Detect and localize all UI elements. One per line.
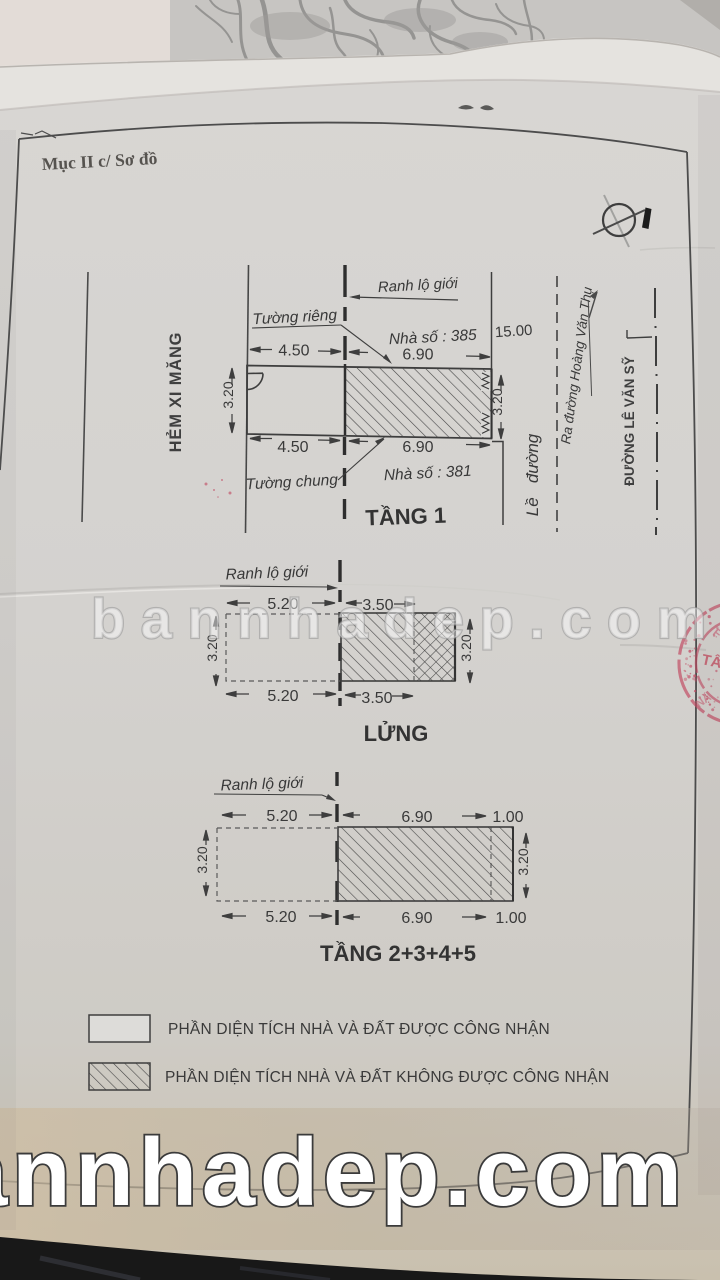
svg-text:4.50: 4.50 bbox=[277, 439, 308, 456]
svg-text:6.90: 6.90 bbox=[401, 910, 432, 927]
svg-text:1.00: 1.00 bbox=[492, 809, 523, 826]
svg-text:bannhadep.com: bannhadep.com bbox=[91, 587, 720, 650]
svg-text:Ranh lộ giới: Ranh lộ giới bbox=[220, 775, 304, 795]
svg-text:3.20: 3.20 bbox=[194, 846, 210, 873]
svg-text:6.90: 6.90 bbox=[401, 809, 432, 826]
svg-text:HẺM XI MĂNG: HẺM XI MĂNG bbox=[166, 332, 185, 453]
svg-text:Lề đường: Lề đường bbox=[523, 433, 542, 516]
svg-text:6.90: 6.90 bbox=[402, 439, 433, 456]
svg-text:4.50: 4.50 bbox=[278, 343, 309, 360]
svg-text:annhadep.com: annhadep.com bbox=[0, 1119, 687, 1226]
svg-text:3.50: 3.50 bbox=[361, 690, 392, 707]
svg-text:5.20: 5.20 bbox=[265, 909, 296, 926]
svg-text:6.90: 6.90 bbox=[402, 347, 433, 364]
svg-text:LỬNG: LỬNG bbox=[364, 721, 429, 746]
svg-text:15.00: 15.00 bbox=[494, 322, 533, 342]
svg-text:5.20: 5.20 bbox=[266, 808, 297, 825]
svg-text:1.00: 1.00 bbox=[495, 910, 526, 927]
svg-text:3.20: 3.20 bbox=[489, 388, 505, 415]
svg-text:ĐƯỜNG LÊ VĂN SỸ: ĐƯỜNG LÊ VĂN SỸ bbox=[622, 356, 637, 486]
svg-text:5.20: 5.20 bbox=[267, 688, 298, 705]
svg-text:3.20: 3.20 bbox=[515, 848, 531, 875]
svg-text:PHẦN DIỆN TÍCH NHÀ VÀ ĐẤT KHÔN: PHẦN DIỆN TÍCH NHÀ VÀ ĐẤT KHÔNG ĐƯỢC CÔN… bbox=[165, 1069, 609, 1086]
svg-text:TẦNG 2+3+4+5: TẦNG 2+3+4+5 bbox=[320, 941, 476, 966]
svg-text:TẦNG 1: TẦNG 1 bbox=[365, 503, 447, 531]
svg-text:3.20: 3.20 bbox=[220, 381, 236, 408]
svg-text:Ranh lộ giới: Ranh lộ giới bbox=[225, 564, 309, 584]
svg-text:PHẦN DIỆN TÍCH NHÀ VÀ ĐẤT ĐƯỢC: PHẦN DIỆN TÍCH NHÀ VÀ ĐẤT ĐƯỢC CÔNG NHẬN bbox=[168, 1021, 550, 1038]
